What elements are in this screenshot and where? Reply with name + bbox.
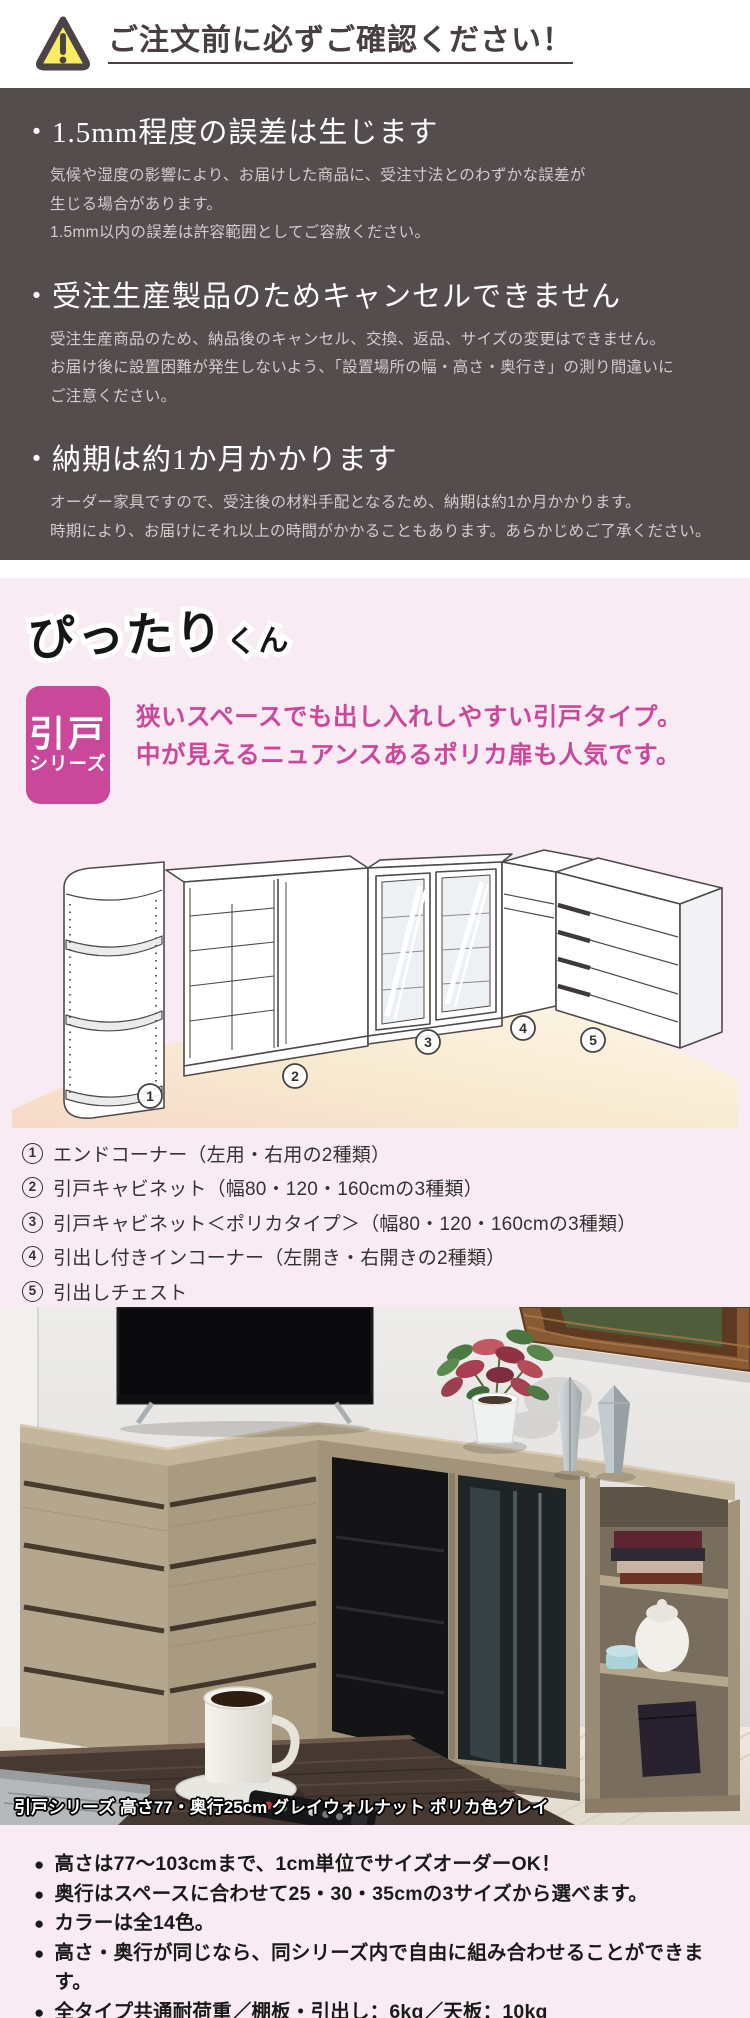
list-item: 3 引戸キャビネット＜ポリカタイプ＞（幅80・120・160cmの3種類）: [22, 1205, 750, 1240]
pittari-kun-logo: ぴったりくん ぴったりくん: [27, 600, 30, 672]
item-text: 引出し付きインコーナー（左開き・右開きの2種類）: [53, 1243, 505, 1270]
callout-5: 5: [589, 1032, 597, 1048]
list-item: 5 引出しチェスト: [22, 1274, 750, 1309]
bullet-icon: ●: [34, 1998, 44, 2018]
feature-text: 全タイプ共通耐荷重／棚板・引出し：6kg／天板：10kg: [54, 1998, 547, 2018]
list-item: 4 引出し付きインコーナー（左開き・右開きの2種類）: [22, 1240, 750, 1275]
feature-item: ● 全タイプ共通耐荷重／棚板・引出し：6kg／天板：10kg: [34, 1998, 732, 2018]
order-notice-section: ・1.5mm程度の誤差は生じます 気候や湿度の影響により、お届けした商品に、受注…: [0, 88, 750, 560]
notice-line: ご注意ください。: [50, 383, 722, 412]
callout-1: 1: [146, 1088, 154, 1104]
feature-item: ● 高さ・奥行が同じなら、同シリーズ内で自由に組み合わせることができます。: [34, 1939, 732, 1998]
notice-line: 受注生産商品のため、納品後のキャンセル、交換、返品、サイズの変更はできません。: [50, 326, 722, 355]
item-text: エンドコーナー（左用・右用の2種類）: [53, 1140, 390, 1167]
tagline-line1: 狭いスペースでも出し入れしやすい引戸タイプ。: [136, 699, 682, 737]
notice-line: 1.5mm以内の誤差は許容範囲としてご容赦ください。: [50, 219, 722, 248]
item-number: 2: [22, 1177, 43, 1198]
notice-tolerance: ・1.5mm程度の誤差は生じます 気候や湿度の影響により、お届けした商品に、受注…: [22, 114, 722, 248]
product-page: ご注文前に必ずご確認ください！ ・1.5mm程度の誤差は生じます 気候や湿度の影…: [0, 0, 750, 2018]
tagline-line2: 中が見えるニュアンスあるポリカ扉も人気です。: [136, 737, 682, 775]
item-number: 5: [22, 1281, 43, 1302]
feature-text: 高さ・奥行が同じなら、同シリーズ内で自由に組み合わせることができます。: [54, 1939, 732, 1998]
confirm-banner: ご注文前に必ずご確認ください！: [0, 0, 750, 88]
item-number: 3: [22, 1212, 43, 1233]
item-number: 4: [22, 1246, 43, 1267]
notice-title: ・受注生産製品のためキャンセルできません: [22, 278, 722, 316]
notice-line: 生じる場合があります。: [50, 191, 722, 220]
warning-triangle-icon: [34, 12, 92, 79]
list-item: 2 引戸キャビネット（幅80・120・160cmの3種類）: [22, 1171, 750, 1206]
item-text: 引戸キャビネット＜ポリカタイプ＞（幅80・120・160cmの3種類）: [53, 1209, 636, 1236]
banner-title: ご注文前に必ずご確認ください！: [108, 24, 573, 64]
notice-delivery: ・納期は約1か月かかります オーダー家具ですので、受注後の材料手配となるため、納…: [22, 441, 722, 546]
badge-main-label: 引戸: [29, 716, 107, 752]
logo-text: ぴったりくん: [27, 591, 289, 669]
feature-item: ● 奥行はスペースに合わせて25・30・35cmの3サイズから選べます。: [34, 1880, 732, 1910]
callout-2: 2: [291, 1068, 299, 1084]
callout-3: 3: [424, 1034, 432, 1050]
bullet-icon: ●: [34, 1939, 44, 1969]
notice-title: ・1.5mm程度の誤差は生じます: [22, 114, 722, 152]
feature-text: カラーは全14色。: [54, 1909, 214, 1939]
room-photo: 引戸シリーズ 高さ77・奥行25cm グレイウォルナット ポリカ色グレイ: [0, 1307, 750, 1825]
series-header: 引戸 シリーズ 狭いスペースでも出し入れしやすい引戸タイプ。 中が見えるニュアン…: [0, 686, 750, 804]
bullet-icon: ●: [34, 1909, 44, 1939]
feature-text: 奥行はスペースに合わせて25・30・35cmの3サイズから選べます。: [54, 1880, 648, 1910]
series-item-list: 1 エンドコーナー（左用・右用の2種類） 2 引戸キャビネット（幅80・120・…: [22, 1136, 750, 1309]
hikido-series-badge: 引戸 シリーズ: [26, 686, 110, 804]
bullet-icon: ●: [34, 1880, 44, 1910]
callout-4: 4: [519, 1020, 527, 1036]
item-number: 1: [22, 1143, 43, 1164]
series-tagline: 狭いスペースでも出し入れしやすい引戸タイプ。 中が見えるニュアンスあるポリカ扉も…: [136, 686, 682, 774]
notice-line: お届け後に設置困難が発生しないよう、「設置場所の幅・高さ・奥行き」の測り間違いに: [50, 354, 722, 383]
notice-no-cancel: ・受注生産製品のためキャンセルできません 受注生産商品のため、納品後のキャンセル…: [22, 278, 722, 412]
feature-text: 高さは77～103cmまで、1cm単位でサイズオーダーOK！: [54, 1850, 560, 1880]
feature-list-section: ● 高さは77～103cmまで、1cm単位でサイズオーダーOK！ ● 奥行はスペ…: [0, 1825, 750, 2018]
badge-sub-label: シリーズ: [29, 755, 106, 774]
section-divider: [0, 560, 750, 578]
series-section: ぴったりくん ぴったりくん 引戸 シリーズ 狭いスペースでも出し入れしやすい引戸…: [0, 578, 750, 1307]
photo-caption: 引戸シリーズ 高さ77・奥行25cm グレイウォルナット ポリカ色グレイ: [14, 1797, 549, 1817]
notice-line: オーダー家具ですので、受注後の材料手配となるため、納期は約1か月かかります。: [50, 489, 722, 518]
notice-line: 時期により、お届けにそれ以上の時間がかかることもあります。あらかじめご了承くださ…: [50, 518, 722, 547]
feature-item: ● カラーは全14色。: [34, 1909, 732, 1939]
bullet-icon: ●: [34, 1850, 44, 1880]
item-text: 引戸キャビネット（幅80・120・160cmの3種類）: [53, 1174, 483, 1201]
item-text: 引出しチェスト: [53, 1278, 187, 1305]
notice-title: ・納期は約1か月かかります: [22, 441, 722, 479]
feature-item: ● 高さは77～103cmまで、1cm単位でサイズオーダーOK！: [34, 1850, 732, 1880]
notice-line: 気候や湿度の影響により、お届けした商品に、受注寸法とのわずかな誤差が: [50, 162, 722, 191]
furniture-line-illustration: 1 2 3 4 5: [0, 808, 750, 1128]
list-item: 1 エンドコーナー（左用・右用の2種類）: [22, 1136, 750, 1171]
